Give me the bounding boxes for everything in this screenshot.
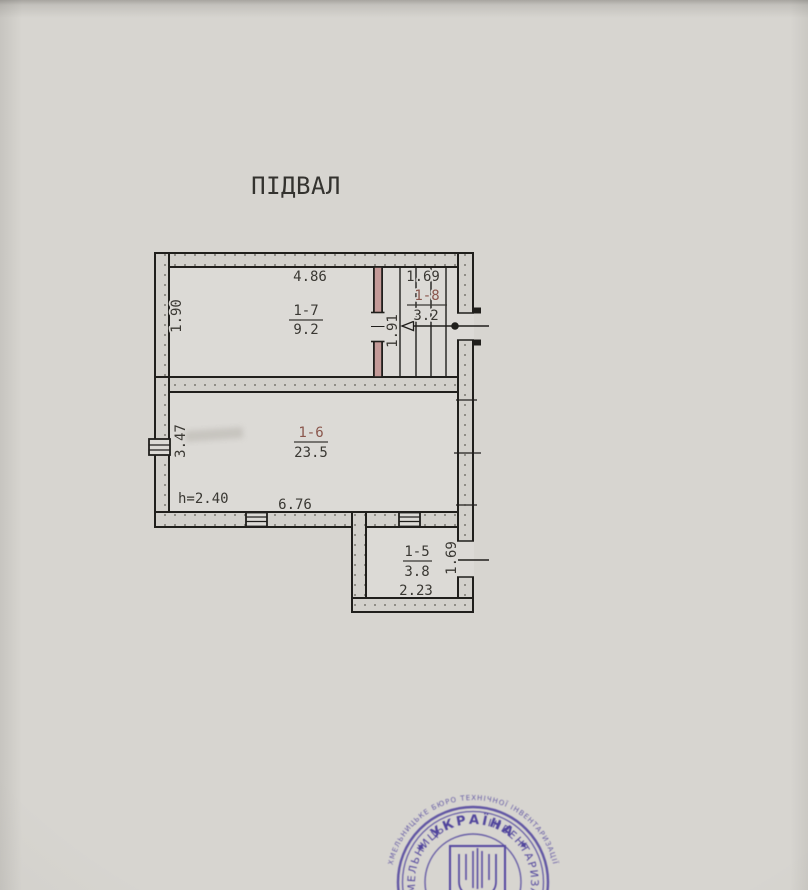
- room-1-6-label: 1-6: [298, 425, 323, 441]
- arrow-start-dot: [451, 322, 459, 330]
- room-1-5-area: 3.8: [404, 564, 429, 580]
- room-1-6-area: 23.5: [294, 445, 328, 461]
- wall-bottom-band: [155, 512, 473, 527]
- official-round-stamp: ХМЕЛЬНИЦЬКЕ БЮРО ТЕХНІЧНОЇ ІНВЕНТАРИЗАЦІ…: [387, 794, 560, 890]
- dim-room15-width: 2.23: [399, 583, 433, 599]
- trident-coat-of-arms: [450, 846, 505, 890]
- ceiling-height-note: h=2.40: [178, 491, 229, 507]
- room-1-8-label: 1-8: [414, 288, 439, 304]
- stamp-right-arc-text: ІНВЕНТАРИЗАЦ: [482, 807, 555, 890]
- dim-room17-width: 4.86: [293, 269, 327, 285]
- room-1-5-label: 1-5: [404, 544, 429, 560]
- door-jamb-stub: [472, 340, 481, 346]
- window-bottom-wall-2: [399, 513, 420, 527]
- wall-left-upper: [155, 253, 169, 391]
- dim-room16-width: 6.76: [278, 497, 312, 513]
- stamp-right-arc-group: ІНВЕНТАРИЗАЦ: [482, 807, 555, 890]
- scanned-basement-floor-plan: ПІДВАЛ: [0, 0, 808, 890]
- room-1-7-area: 9.2: [293, 322, 318, 338]
- stamp-right-arc-textpath: ІНВЕНТАРИЗАЦ: [482, 807, 555, 890]
- dim-room15-depth: 1.69: [444, 541, 460, 575]
- dim-stair-width: 1.69: [406, 269, 440, 285]
- page-title: ПІДВАЛ: [251, 172, 341, 200]
- window-bottom-wall-1: [246, 513, 267, 527]
- wall-ext-bottom: [352, 598, 473, 612]
- window-left-wall: [149, 439, 170, 455]
- dim-room17-depth: 1.90: [169, 299, 185, 333]
- floor-plan-drawing: ПІДВАЛ: [0, 0, 808, 890]
- room-1-7-label: 1-7: [293, 303, 318, 319]
- wall-top: [155, 253, 473, 267]
- room-1-8-area: 3.2: [413, 308, 438, 324]
- room-1-5-door: [457, 541, 489, 577]
- door-jamb-stub: [472, 308, 481, 314]
- wall-mid-band: [155, 377, 473, 392]
- room-1-7-interior: [169, 267, 374, 377]
- dim-stair-landing: 1.91: [385, 314, 401, 348]
